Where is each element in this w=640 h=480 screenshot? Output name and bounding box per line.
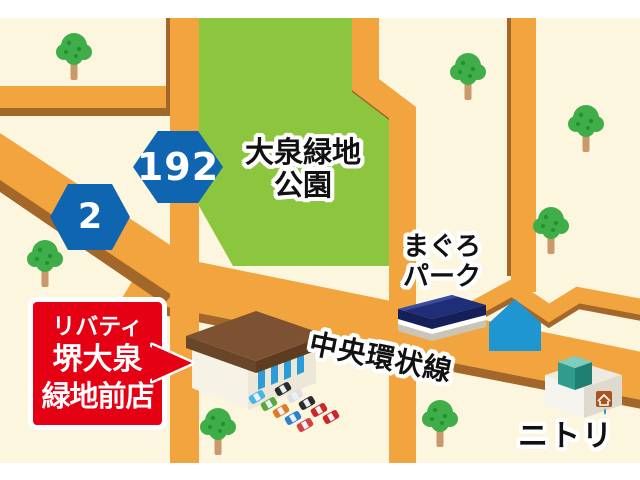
park-name-label: 大泉緑地 公園: [228, 136, 378, 202]
route-sign-192-number: 192: [133, 145, 223, 189]
maguro-park-line1: まぐろ: [390, 232, 494, 262]
store-location-map: 大泉緑地 公園 192 2 まぐろ パーク 中央環状線 ニトリ リバティ 堺大泉…: [0, 0, 640, 480]
maguro-park-label: まぐろ パーク: [390, 232, 494, 292]
park-name-line2: 公園: [228, 169, 378, 202]
store-callout-line3: 緑地前店: [41, 378, 153, 415]
store-callout-line1: リバティ: [52, 313, 143, 341]
store-callout-line2: 堺大泉: [53, 341, 143, 378]
nitori-roof-cube: [558, 356, 592, 390]
road-right-vertical: [507, 18, 536, 292]
route-sign-2-number: 2: [50, 196, 130, 238]
store-callout: リバティ 堺大泉 緑地前店: [28, 297, 167, 430]
maguro-park-line2: パーク: [390, 262, 494, 292]
road-left-vertical: [166, 18, 199, 463]
park-name-line1: 大泉緑地: [228, 136, 378, 169]
nitori-label: ニトリ: [518, 411, 614, 455]
callout-pointer: [150, 340, 198, 386]
